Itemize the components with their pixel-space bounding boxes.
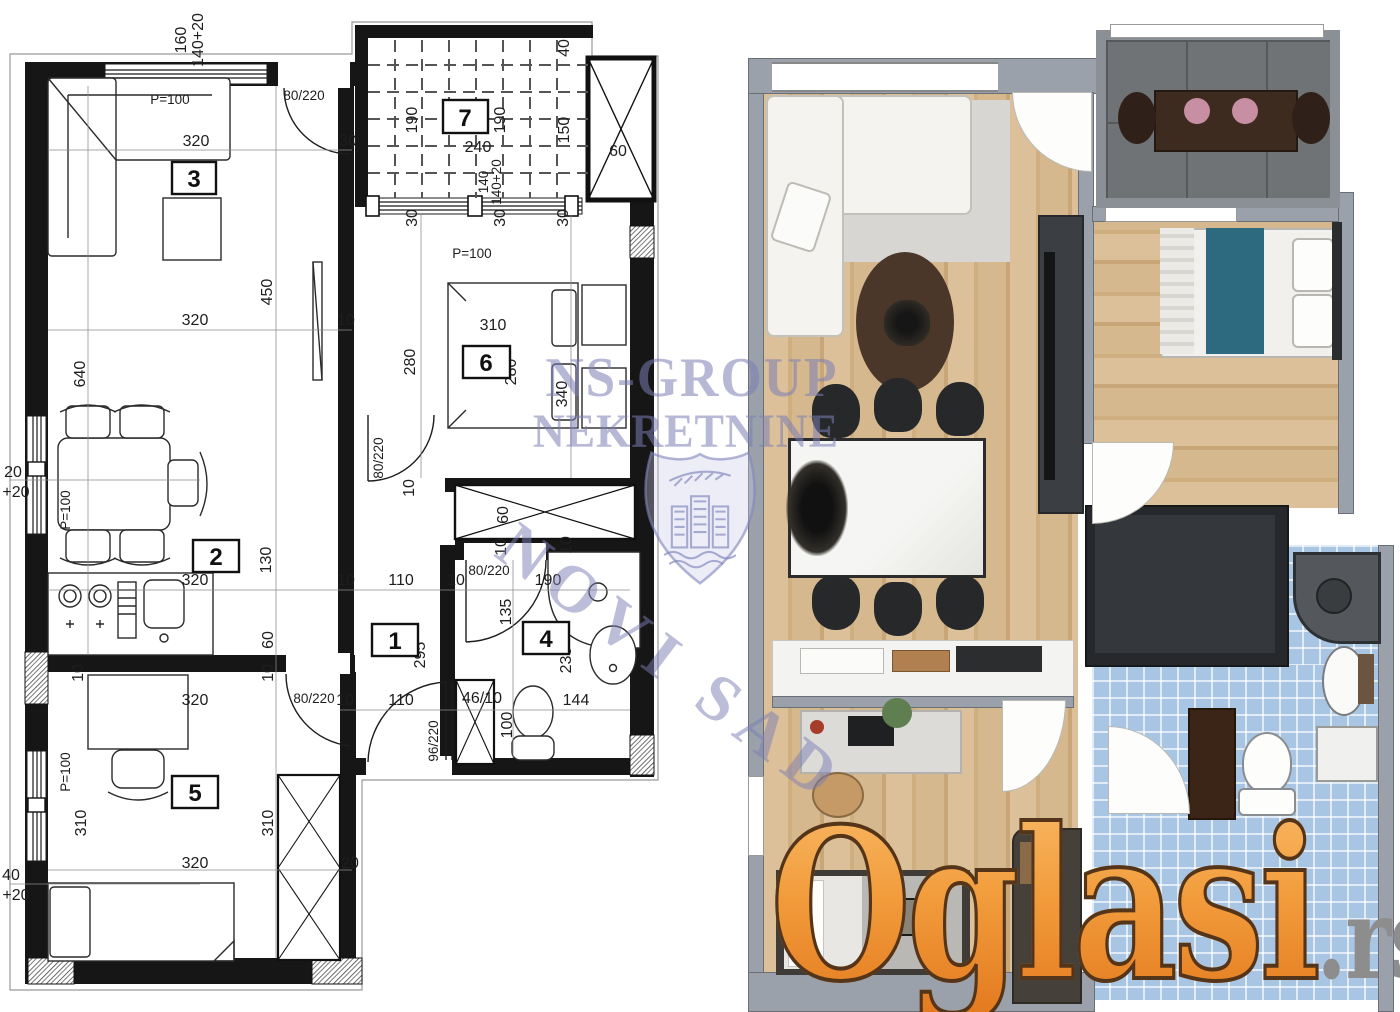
table-plant bbox=[884, 300, 930, 346]
stove bbox=[956, 646, 1042, 672]
wardrobe-inner bbox=[1095, 515, 1275, 653]
desk-plant bbox=[882, 698, 912, 728]
oglasi-logo-text: Oglasi bbox=[770, 784, 1316, 1012]
oglasi-logo: Oglasi.rs bbox=[770, 802, 1400, 1010]
bar-chair bbox=[936, 382, 984, 436]
tv-screen bbox=[1044, 252, 1055, 480]
terrace-chair bbox=[1292, 92, 1330, 144]
terrace bbox=[1096, 30, 1340, 208]
bar-chair bbox=[874, 582, 922, 636]
flower-plate bbox=[1232, 98, 1258, 124]
cutting-board bbox=[892, 650, 950, 672]
bed-pillow bbox=[1292, 294, 1334, 348]
watermark-line1: NS-GROUP bbox=[528, 346, 856, 410]
island-plant bbox=[786, 460, 848, 556]
washing-machine bbox=[1316, 726, 1378, 782]
bar-chair bbox=[936, 576, 984, 630]
shower-drain bbox=[1316, 578, 1352, 614]
watermark-shield-logo bbox=[636, 450, 764, 586]
window-terrace-top bbox=[1110, 24, 1324, 38]
headboard bbox=[1332, 222, 1342, 360]
cooktop-panel bbox=[800, 648, 884, 674]
flower-plate bbox=[1184, 98, 1210, 124]
bed-ruffle bbox=[1160, 228, 1194, 354]
terrace-table bbox=[1154, 90, 1298, 152]
window-living-top bbox=[772, 62, 998, 92]
window-desk-room bbox=[748, 776, 764, 856]
floor-plan-image: 160 140+20 P=100 80/220 320 30 190 240 1… bbox=[0, 0, 1400, 1012]
bar-chair bbox=[874, 378, 922, 432]
bed-pillow bbox=[1292, 238, 1334, 292]
bed-teal-runner bbox=[1206, 228, 1264, 354]
terrace-chair bbox=[1118, 92, 1156, 144]
sink-shelf bbox=[1358, 654, 1374, 704]
oglasi-logo-tld: .rs bbox=[1316, 874, 1400, 1005]
bar-chair bbox=[812, 576, 860, 630]
